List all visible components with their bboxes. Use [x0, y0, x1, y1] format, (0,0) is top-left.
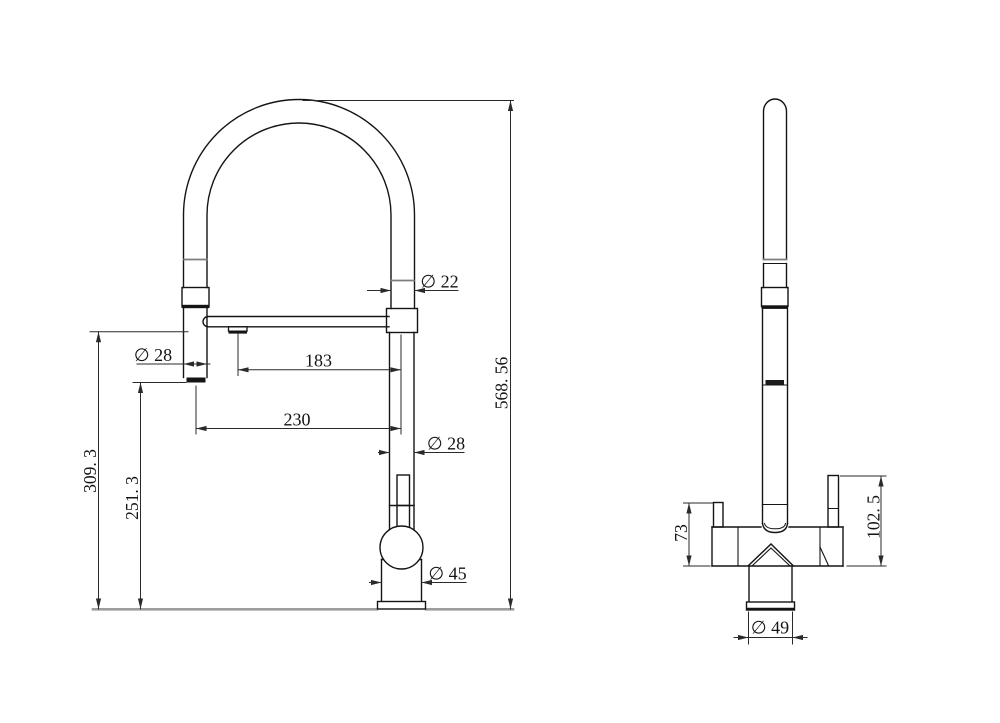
label-spray-outlet-height: 251. 3	[122, 476, 142, 520]
spray-head-tip	[187, 378, 206, 383]
label-nozzle-height: 309. 3	[80, 449, 100, 493]
side-base	[747, 566, 795, 610]
spray-head	[182, 288, 209, 383]
dim-nozzle-height	[90, 332, 188, 609]
column-collar	[387, 309, 418, 333]
base-plate	[378, 602, 426, 610]
label-left-lever-height: 73	[671, 524, 691, 542]
label-valve-body-diameter: ∅ 45	[428, 564, 466, 584]
ball-joint	[380, 526, 423, 569]
side-sleeve-joint	[766, 380, 785, 385]
label-right-lever-height: 102. 5	[864, 495, 884, 539]
front-view: ∅ 22 ∅ 28 183 230 ∅ 28 ∅ 45 568. 56 309.…	[80, 100, 514, 610]
side-view: 73 102. 5 ∅ 49	[671, 99, 886, 644]
technical-drawing: ∅ 22 ∅ 28 183 230 ∅ 28 ∅ 45 568. 56 309.…	[0, 0, 1000, 723]
body-diagonal-detail	[820, 547, 829, 566]
main-column	[387, 309, 418, 531]
spout-hose-arc	[184, 100, 415, 309]
right-lever	[828, 476, 839, 528]
label-spout-reach: 230	[284, 410, 311, 430]
label-column-diameter: ∅ 28	[427, 434, 465, 454]
left-lever	[714, 503, 724, 528]
column-bowl	[763, 524, 788, 533]
label-tube-diameter: ∅ 22	[420, 272, 458, 292]
side-body	[712, 476, 843, 567]
drawing-canvas: ∅ 22 ∅ 28 183 230 ∅ 28 ∅ 45 568. 56 309.…	[0, 0, 1000, 723]
label-nozzle-offset: 183	[305, 351, 332, 371]
label-spray-head-diameter: ∅ 28	[134, 345, 172, 365]
dim-nozzle-offset	[238, 334, 401, 435]
side-column	[762, 99, 789, 533]
nozzle	[229, 327, 248, 334]
label-base-diameter: ∅ 49	[751, 618, 789, 638]
side-collar	[762, 288, 789, 307]
valve-body	[378, 526, 426, 609]
support-arm	[203, 316, 389, 326]
label-overall-height: 568. 56	[492, 357, 512, 410]
handle-lever	[397, 475, 410, 506]
